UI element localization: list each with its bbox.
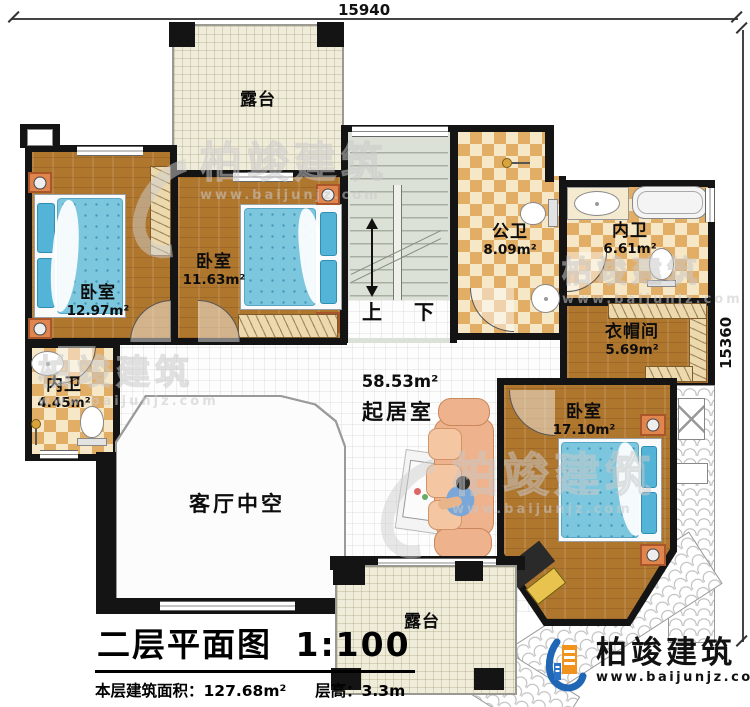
- wardrobe: [608, 303, 707, 319]
- flower-decor: [414, 488, 421, 495]
- pillar: [169, 22, 195, 47]
- window: [160, 601, 295, 611]
- toilet-base: [77, 438, 107, 446]
- dimension-tick: [8, 11, 20, 23]
- nightstand: [28, 172, 52, 193]
- room-label-ensuite-left: 内卫4.45m²: [37, 375, 90, 412]
- shower-head-icon: [502, 158, 512, 168]
- bed-pillow: [641, 492, 657, 534]
- brand-logo: 柏竣建筑 www.baijunjz.com: [546, 636, 750, 698]
- room-label-bedroom-mid: 卧室11.63m²: [183, 252, 246, 289]
- pillar: [474, 668, 504, 690]
- pillar: [317, 22, 344, 47]
- bed-pillow: [641, 446, 657, 488]
- wall: [96, 452, 116, 604]
- title-block: 二层平面图 1:100 本层建筑面积：127.68m² 层高：3.3m: [95, 618, 415, 701]
- room-label-public-bath: 公卫8.09m²: [483, 222, 536, 259]
- bed-pillow: [320, 212, 337, 256]
- wardrobe: [238, 314, 338, 338]
- corner-niche: [27, 129, 53, 146]
- window: [705, 188, 715, 222]
- chimney: [678, 398, 705, 440]
- flower-decor: [422, 494, 428, 500]
- room-label-living-area: 58.53m²: [362, 372, 439, 392]
- shower-head-icon: [31, 419, 41, 429]
- wardrobe: [150, 166, 171, 256]
- pillar: [455, 561, 483, 581]
- stair-arrow-down-icon: [366, 286, 378, 297]
- plan-title-text: 二层平面图: [97, 625, 272, 664]
- toilet-tank: [548, 199, 558, 227]
- plan-subtitle: 本层建筑面积：127.68m² 层高：3.3m: [95, 679, 415, 701]
- exterior-mask: [552, 120, 574, 176]
- brand-website: www.baijunjz.com: [596, 670, 750, 685]
- pillar: [333, 563, 365, 585]
- nightstand: [640, 544, 666, 566]
- sofa-arm: [434, 528, 492, 558]
- floor-area-label: 本层建筑面积：: [95, 682, 204, 700]
- dimension-tick: [731, 11, 743, 23]
- room-label-void: 客厅中空: [189, 492, 285, 517]
- room-label-living: 起居室: [362, 400, 434, 425]
- stair-arrow-up-icon: [366, 218, 378, 229]
- bed-pillow: [320, 260, 337, 304]
- roof-opening: [676, 463, 708, 484]
- sofa-cushion: [428, 428, 462, 460]
- right-dimension-line: [742, 30, 744, 642]
- floor-plan-canvas: 15940 15360 上 下: [0, 0, 750, 707]
- stair-down-label: 下: [414, 300, 434, 324]
- shower-arm: [512, 162, 530, 164]
- person-head: [456, 476, 470, 490]
- sink: [531, 284, 560, 313]
- room-label-ensuite-top: 内卫6.61m²: [603, 221, 656, 258]
- room-label-bedroom-left: 卧室12.97m²: [67, 283, 130, 320]
- plan-title: 二层平面图 1:100: [95, 618, 415, 673]
- window: [352, 126, 448, 137]
- window: [77, 146, 143, 156]
- window: [233, 172, 293, 182]
- stair-direction-line: [371, 228, 373, 288]
- right-dimension-label: 15360: [717, 325, 735, 369]
- floor-area-value: 127.68m²: [204, 682, 287, 700]
- nightstand: [640, 414, 666, 436]
- top-dimension-label: 15940: [338, 1, 390, 19]
- bathtub: [632, 186, 708, 219]
- floor-height-value: 3.3m: [362, 682, 406, 700]
- nightstand: [316, 184, 340, 205]
- floor-height-label: 层高：: [315, 682, 362, 700]
- room-label-cloakroom: 衣帽间5.69m²: [605, 322, 659, 359]
- room-label-bedroom-master: 卧室17.10m²: [553, 402, 616, 439]
- stair-up-label: 上: [362, 300, 382, 324]
- shower-arm: [35, 429, 37, 445]
- wall: [545, 125, 554, 182]
- room-label-terrace-top: 露台: [240, 90, 276, 110]
- brand-logo-icon: [546, 636, 588, 698]
- toilet-base: [647, 280, 676, 287]
- sink: [574, 191, 620, 216]
- sofa-arm: [438, 398, 490, 426]
- plan-scale: 1:100: [296, 625, 411, 664]
- window: [40, 450, 78, 459]
- brand-name: 柏竣建筑: [596, 636, 750, 670]
- nightstand: [28, 318, 52, 339]
